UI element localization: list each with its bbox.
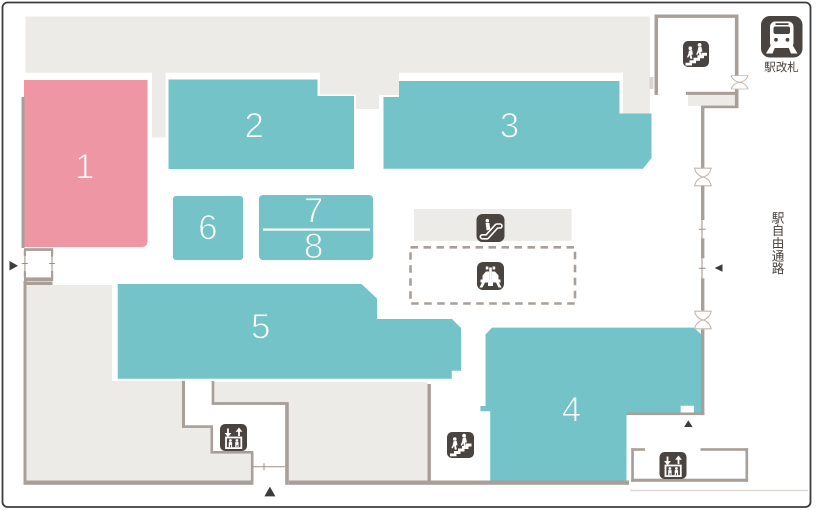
svg-text:路: 路 <box>772 261 785 276</box>
svg-text:3: 3 <box>500 107 519 146</box>
svg-text:4: 4 <box>562 391 581 430</box>
svg-text:8: 8 <box>304 227 323 266</box>
svg-text:5: 5 <box>251 307 270 346</box>
svg-text:7: 7 <box>304 192 323 231</box>
svg-text:2: 2 <box>244 106 263 145</box>
svg-text:1: 1 <box>75 148 94 187</box>
svg-text:6: 6 <box>198 209 217 248</box>
svg-text:駅改札: 駅改札 <box>764 60 799 74</box>
